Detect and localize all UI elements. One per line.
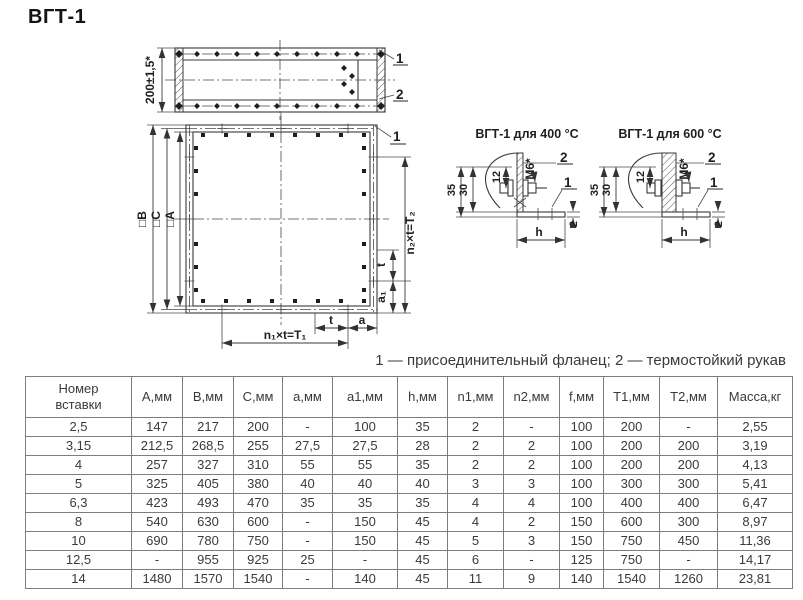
table-cell: 780 [183,532,234,551]
dim-label-h: h [535,225,542,239]
spec-table: Номер вставкиА,ммВ,ммС,мма,мма1,ммh,ммn1… [25,376,793,589]
table-cell: 8 [26,513,132,532]
table-cell: - [283,513,333,532]
column-header: h,мм [398,377,448,418]
table-cell: 45 [398,570,448,589]
column-header: n1,мм [448,377,504,418]
table-cell: 200 [660,437,718,456]
table-cell: 147 [132,418,183,437]
table-cell: 125 [560,551,604,570]
table-cell: 100 [560,437,604,456]
table-cell: 35 [398,418,448,437]
table-cell: 4 [448,513,504,532]
table-cell: 200 [660,456,718,475]
column-header: Масса,кг [718,377,793,418]
dim-label-30: 30 [458,184,470,196]
callout-flange-front: 1 [393,129,401,144]
table-cell: 200 [604,437,660,456]
flange-leg [517,212,565,217]
table-cell: 35 [398,456,448,475]
dim-label-a: a [359,313,366,327]
table-row: 14148015701540-140451191401540126023,81 [26,570,793,589]
table-cell: 2 [448,418,504,437]
table-cell: 12,5 [26,551,132,570]
table-cell: 405 [183,475,234,494]
table-cell: 750 [604,532,660,551]
column-header: А,мм [132,377,183,418]
table-cell: 5,41 [718,475,793,494]
table-cell: 200 [234,418,283,437]
table-cell: 200 [604,418,660,437]
dim-label-T1: n₁×t=T₁ [264,328,307,342]
table-row: 2,5147217200-100352-100200-2,55 [26,418,793,437]
table-cell: 268,5 [183,437,234,456]
callout-sleeve-detail: 2 [560,150,568,165]
table-cell: - [333,551,398,570]
dim-label-a1: a₁ [374,291,388,303]
thread-label: M6* [523,158,537,180]
table-cell: 55 [283,456,333,475]
table-cell: 100 [560,475,604,494]
table-cell: 4 [448,494,504,513]
table-cell: - [504,551,560,570]
table-cell: 540 [132,513,183,532]
table-cell: 1540 [234,570,283,589]
detail-600-title: ВГТ-1 для 600 °С [618,127,721,141]
table-cell: 2 [504,437,560,456]
table-cell: 9 [504,570,560,589]
column-header: f,мм [560,377,604,418]
callout-sleeve-detail: 2 [708,150,716,165]
table-cell: 150 [333,513,398,532]
table-row: 12,5-95592525-456-125750-14,17 [26,551,793,570]
table-cell: 3,19 [718,437,793,456]
table-cell: 690 [132,532,183,551]
table-cell: - [660,551,718,570]
table-cell: 27,5 [283,437,333,456]
table-cell: 310 [234,456,283,475]
column-header: n2,мм [504,377,560,418]
table-cell: 14 [26,570,132,589]
table-cell: 300 [604,475,660,494]
table-cell: 327 [183,456,234,475]
table-cell: - [283,570,333,589]
legend-caption: 1 — присоединительный фланец; 2 — термос… [375,352,786,369]
detail-view-600: ВГТ-1 для 600 °С 35 30 12 M6* [589,127,725,248]
table-cell: 150 [560,532,604,551]
callout-sleeve: 2 [396,87,404,102]
table-cell: 212,5 [132,437,183,456]
table-cell: 35 [398,494,448,513]
table-cell: 6,47 [718,494,793,513]
table-cell: - [504,418,560,437]
table-cell: 450 [660,532,718,551]
table-cell: 630 [183,513,234,532]
table-cell: 955 [183,551,234,570]
table-cell: 100 [333,418,398,437]
table-cell: - [660,418,718,437]
detail-400-title: ВГТ-1 для 400 °С [475,127,578,141]
dim-label-12: 12 [635,171,647,183]
table-cell: 40 [283,475,333,494]
callout-flange-detail: 1 [564,175,572,190]
table-cell: 6,3 [26,494,132,513]
dim-label-2: 2 [568,221,580,227]
table-cell: 1480 [132,570,183,589]
table-cell: 400 [660,494,718,513]
dim-label-A: □A [163,211,177,227]
table-cell: 750 [604,551,660,570]
table-cell: 925 [234,551,283,570]
table-cell: 55 [333,456,398,475]
table-cell: 3 [448,475,504,494]
table-cell: 3 [504,475,560,494]
table-cell: 45 [398,513,448,532]
table-cell: 4,13 [718,456,793,475]
dim-label-2: 2 [713,221,725,227]
table-row: 5325405380404040331003003005,41 [26,475,793,494]
table-cell: 23,81 [718,570,793,589]
column-header: а1,мм [333,377,398,418]
table-cell: 8,97 [718,513,793,532]
table-cell: 35 [333,494,398,513]
table-cell: 2 [448,437,504,456]
table-cell: 100 [560,418,604,437]
table-row: 8540630600-15045421506003008,97 [26,513,793,532]
table-cell: 750 [234,532,283,551]
table-cell: 255 [234,437,283,456]
table-cell: 10 [26,532,132,551]
table-cell: 300 [660,513,718,532]
table-cell: 400 [604,494,660,513]
table-cell: 300 [660,475,718,494]
dim-label-T2: n₂×t=T₂ [403,211,417,254]
dim-label-h: h [680,225,687,239]
bolt-square-marks [194,133,366,303]
table-cell: 3 [504,532,560,551]
dim-label-30: 30 [601,184,613,196]
table-cell: 4 [504,494,560,513]
table-cell: 14,17 [718,551,793,570]
table-cell: 2 [448,456,504,475]
table-cell: 35 [283,494,333,513]
table-cell: 493 [183,494,234,513]
table-cell: 11 [448,570,504,589]
callout-flange-detail: 1 [710,175,718,190]
header-row: Номер вставкиА,ммВ,ммС,мма,мма1,ммh,ммn1… [26,377,793,418]
top-view-drawing: 200±1,5* 1 2 [143,40,408,120]
table-cell: - [132,551,183,570]
table-cell: 2,5 [26,418,132,437]
table-cell: 11,36 [718,532,793,551]
table-cell: 40 [398,475,448,494]
column-header: В,мм [183,377,234,418]
table-cell: 6 [448,551,504,570]
table-cell: 25 [283,551,333,570]
table-cell: 1260 [660,570,718,589]
dim-label-t-bottom: t [329,313,333,327]
table-cell: 4 [26,456,132,475]
table-row: 3,15212,5268,525527,527,528221002002003,… [26,437,793,456]
callout-flange: 1 [396,51,404,66]
table-cell: - [283,532,333,551]
table-cell: 470 [234,494,283,513]
table-cell: 3,15 [26,437,132,456]
table-cell: 28 [398,437,448,456]
dim-label-B: □B [135,211,149,227]
table-body: 2,5147217200-100352-100200-2,553,15212,5… [26,418,793,589]
dim-label-C: □C [149,211,163,227]
table-cell: 600 [234,513,283,532]
table-row: 4257327310555535221002002004,13 [26,456,793,475]
table-cell: 40 [333,475,398,494]
table-cell: 217 [183,418,234,437]
dim-label-length: 200±1,5* [143,56,157,104]
table-cell: 45 [398,532,448,551]
table-cell: 2 [504,513,560,532]
table-cell: 1570 [183,570,234,589]
column-header: а,мм [283,377,333,418]
table-cell: 2,55 [718,418,793,437]
table-cell: 5 [26,475,132,494]
column-header: T2,мм [660,377,718,418]
table-cell: 150 [560,513,604,532]
table-cell: 600 [604,513,660,532]
table-cell: 423 [132,494,183,513]
column-header: T1,мм [604,377,660,418]
table-cell: 45 [398,551,448,570]
table-cell: 27,5 [333,437,398,456]
sleeve-plate [662,153,676,212]
thread-label: M6* [677,158,691,180]
dim-label-35: 35 [446,184,458,196]
dim-label-35: 35 [589,184,601,196]
table-cell: 100 [560,456,604,475]
flange-leg [662,212,710,217]
table-cell: 5 [448,532,504,551]
table-cell: 100 [560,494,604,513]
table-cell: 150 [333,532,398,551]
table-cell: 200 [604,456,660,475]
table-row: 6,3423493470353535441004004006,47 [26,494,793,513]
table-row: 10690780750-150455315075045011,36 [26,532,793,551]
table-cell: 2 [504,456,560,475]
front-view-drawing: □B □C □A n₂×t=T₂ t a₁ t a n₁×t=T₁ [135,113,417,349]
dim-label-12: 12 [491,171,503,183]
table-cell: 1540 [604,570,660,589]
column-header: Номер вставки [26,377,132,418]
table-cell: 325 [132,475,183,494]
dim-label-t-side: t [374,263,388,267]
table-cell: 140 [333,570,398,589]
table-cell: 257 [132,456,183,475]
catalog-page: ВГТ-1 [0,0,803,600]
column-header: С,мм [234,377,283,418]
detail-view-400: ВГТ-1 для 400 °С 35 30 12 M6* [446,127,580,248]
technical-drawing: 200±1,5* 1 2 [0,0,803,352]
table-cell: - [283,418,333,437]
table-cell: 380 [234,475,283,494]
table-cell: 140 [560,570,604,589]
